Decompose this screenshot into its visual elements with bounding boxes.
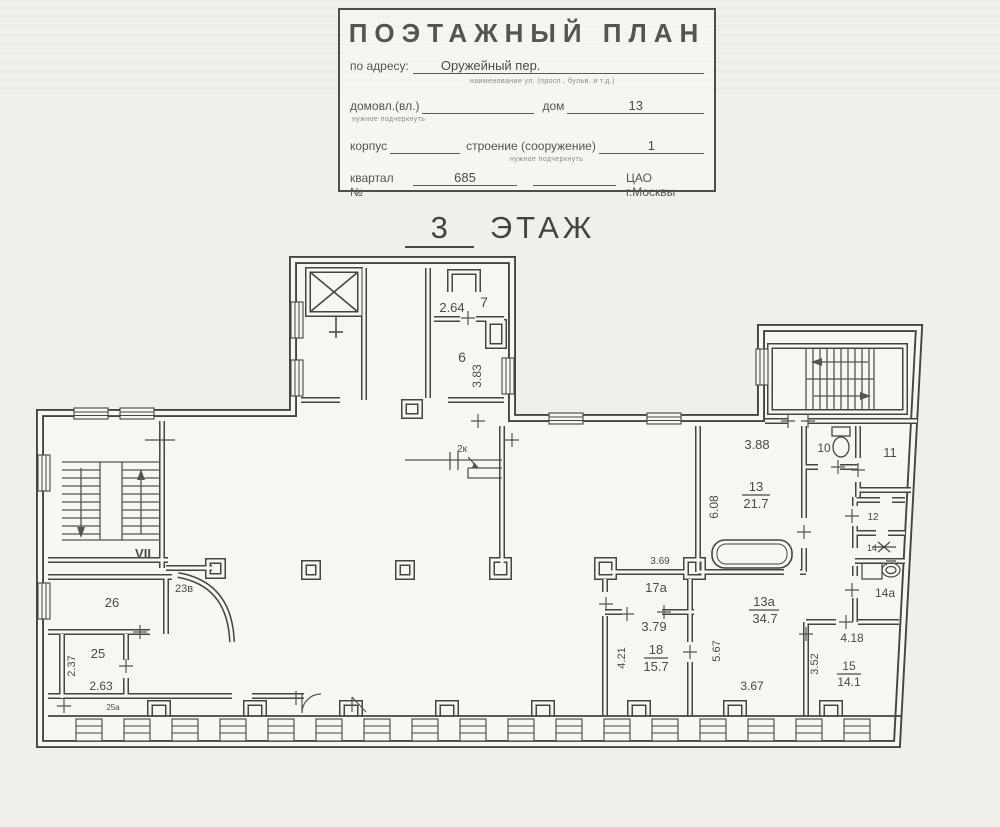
- dim-label-5-67: 5.67: [711, 640, 723, 661]
- dim-label-2-64: 2.64: [439, 300, 464, 315]
- room-label-15: 15: [842, 659, 856, 673]
- room-label-18: 18: [649, 642, 663, 657]
- room-label-23v: 23в: [175, 583, 193, 595]
- area-label-14-1: 14.1: [837, 675, 861, 689]
- room-label-26: 26: [105, 595, 119, 610]
- dim-label-3-79: 3.79: [641, 619, 666, 634]
- room-label-10: 10: [817, 441, 831, 455]
- scanned-floor-plan-page: ПОЭТАЖНЫЙ ПЛАН по адресу: Оружейный пер.…: [0, 0, 1000, 827]
- room-label-12: 12: [867, 512, 879, 523]
- dim-label-3-83: 3.83: [470, 364, 484, 388]
- room-label-13: 13: [749, 479, 763, 494]
- room-label-25a: 25а: [106, 703, 120, 712]
- room-label-17a: 17а: [645, 580, 667, 595]
- dim-label-4-21: 4.21: [616, 647, 628, 668]
- area-label-21-7: 21.7: [743, 496, 768, 511]
- dim-label-3-69: 3.69: [650, 556, 670, 567]
- area-label-15-7: 15.7: [643, 659, 668, 674]
- dim-label-3-88: 3.88: [744, 437, 769, 452]
- floor-plan-drawing: 7 2.64 6 3.83 2к 3.88 13 21.7 6.08 10 11…: [0, 0, 1000, 827]
- dim-label-4-18: 4.18: [840, 631, 864, 645]
- room-label-14: 14: [867, 543, 877, 553]
- dim-label-2-37: 2.37: [66, 655, 78, 676]
- dim-label-3-52: 3.52: [809, 653, 821, 674]
- room-label-7: 7: [480, 294, 488, 310]
- room-label-25: 25: [91, 646, 105, 661]
- dim-label-2-63: 2.63: [89, 679, 113, 693]
- room-label-6: 6: [458, 349, 466, 365]
- note-label-2k: 2к: [457, 444, 468, 455]
- building-footprint: [40, 260, 919, 744]
- room-label-14a: 14а: [875, 586, 895, 600]
- area-label-34-7: 34.7: [752, 611, 777, 626]
- room-label-13a: 13а: [753, 594, 775, 609]
- dim-label-6-08: 6.08: [707, 495, 721, 519]
- room-label-11: 11: [883, 445, 897, 460]
- stairwell-label-vii: VII: [135, 546, 151, 561]
- dim-label-3-67: 3.67: [740, 679, 764, 693]
